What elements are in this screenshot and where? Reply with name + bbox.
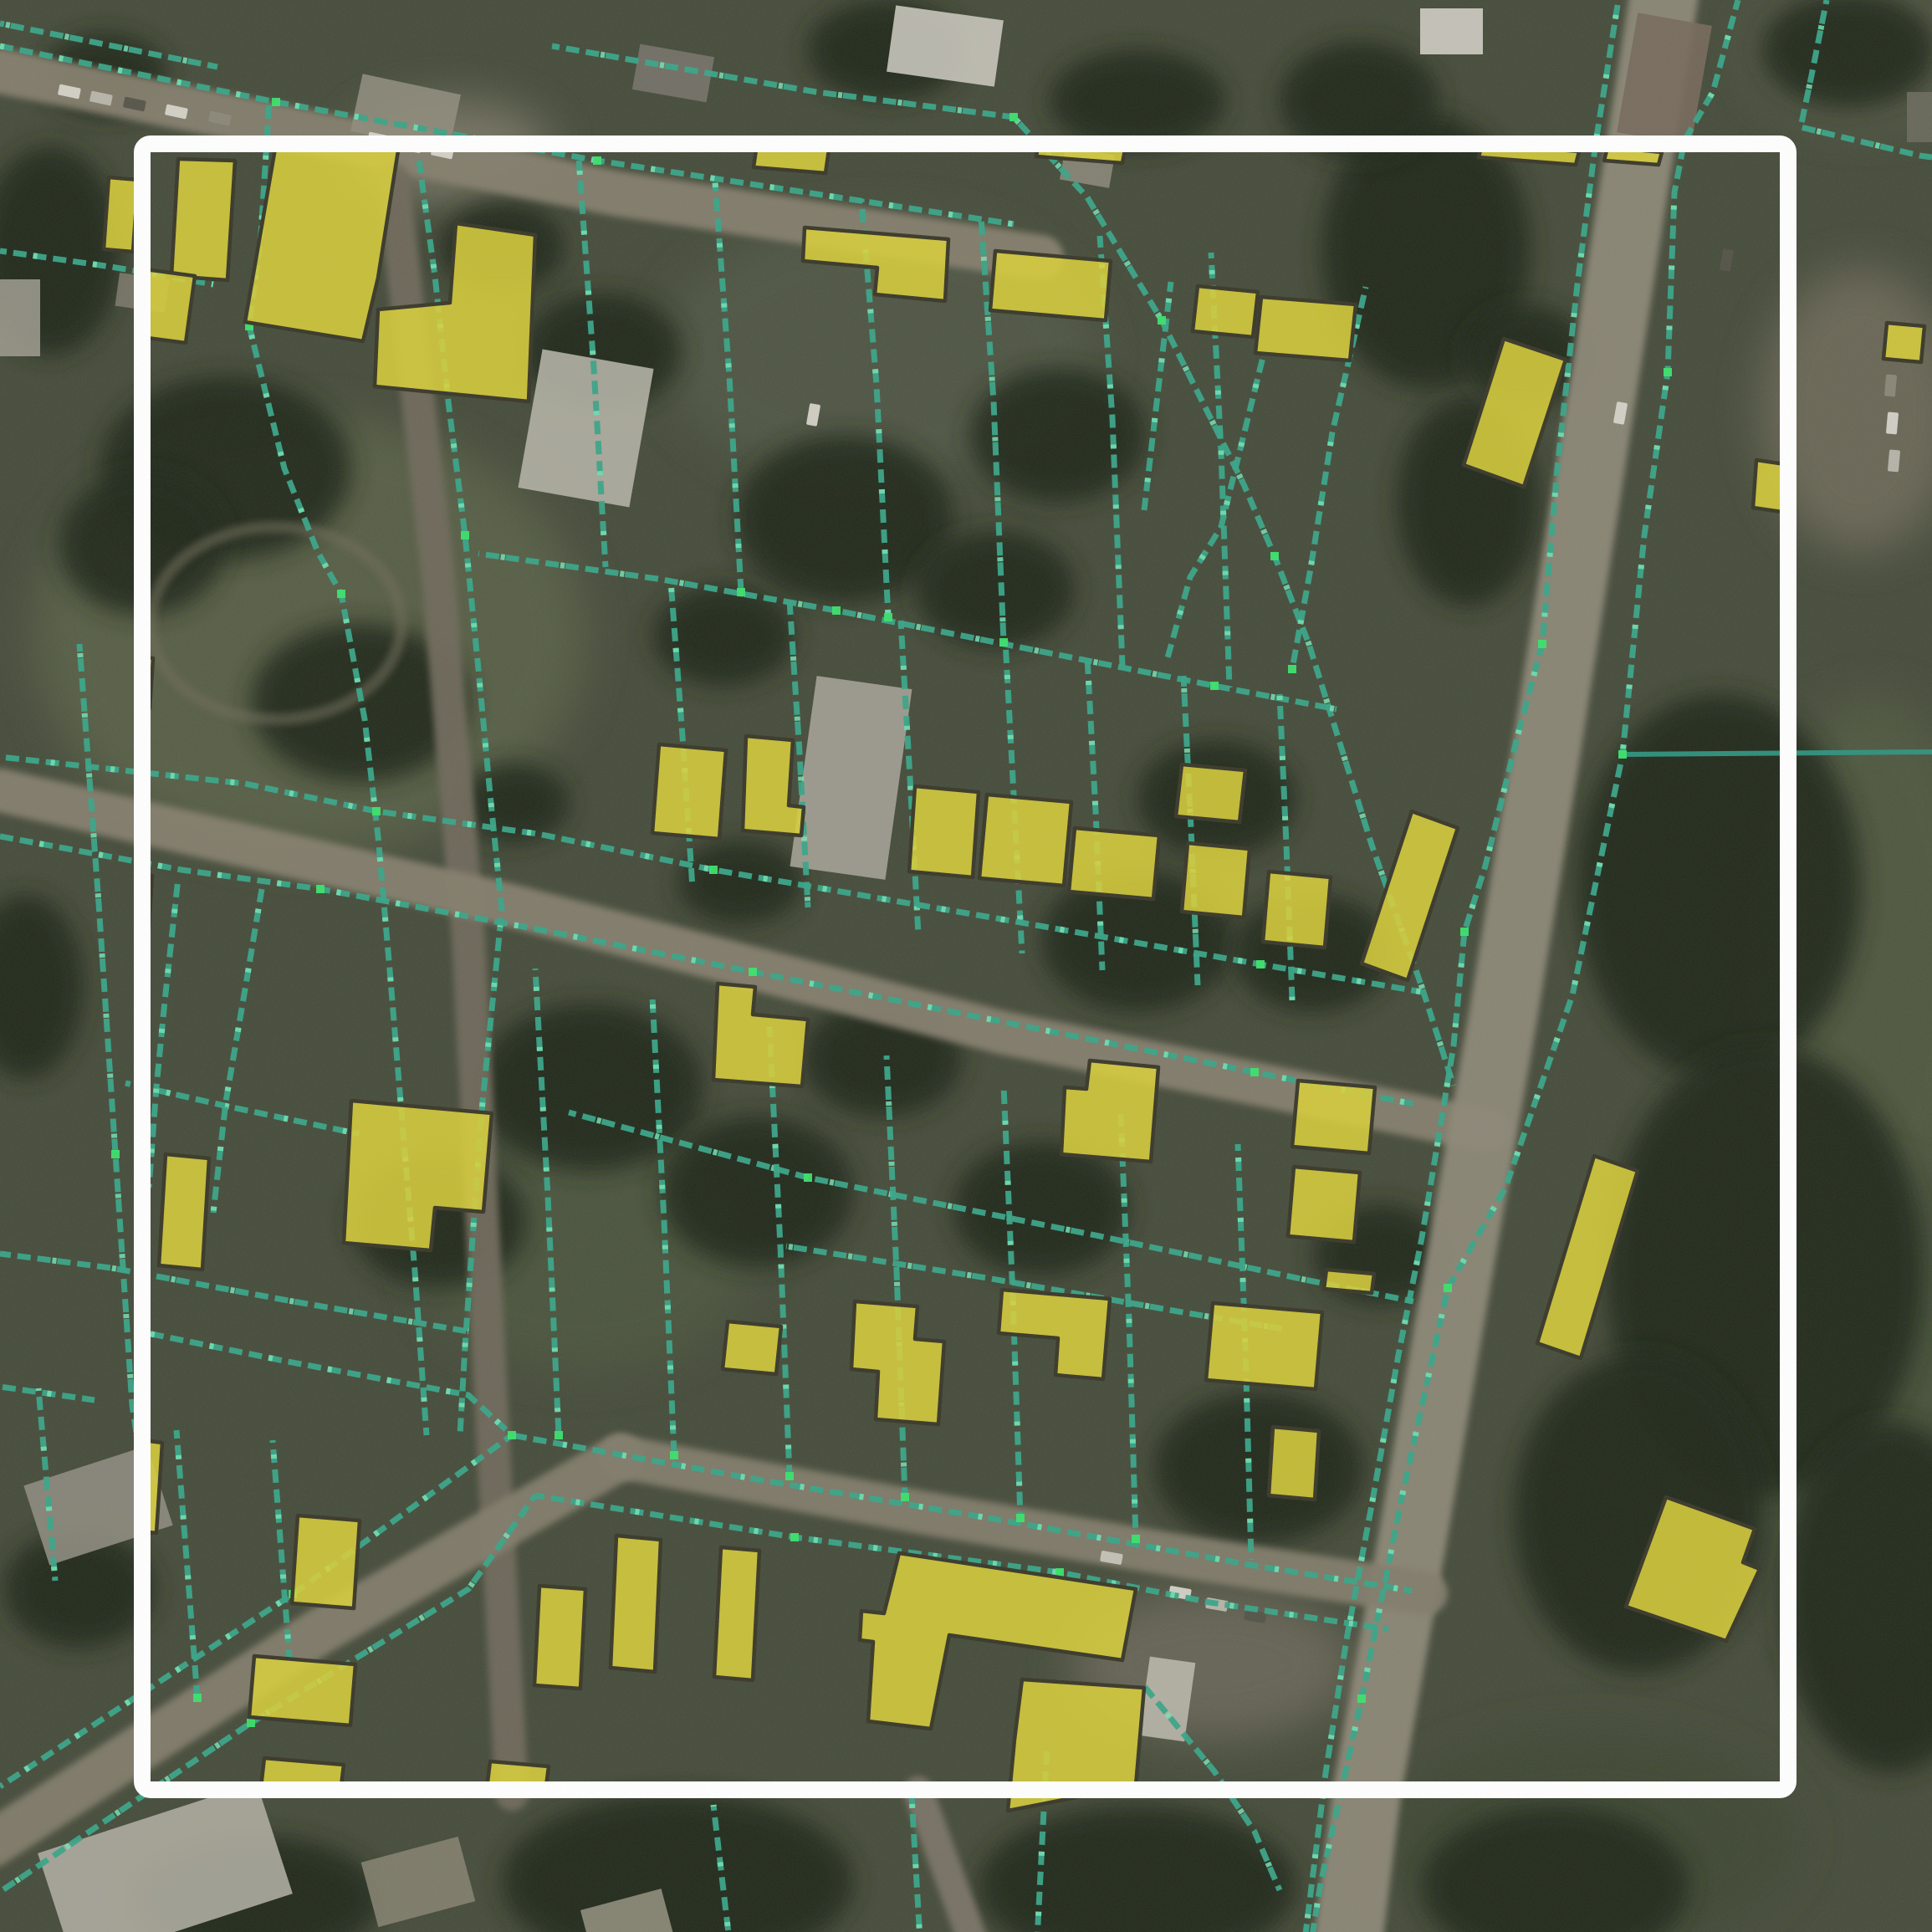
- noise-overlay: [0, 0, 1932, 1932]
- map-viewport[interactable]: [0, 0, 1932, 1932]
- grain-rect: [0, 0, 1932, 1932]
- map-canvas[interactable]: [0, 0, 1932, 1932]
